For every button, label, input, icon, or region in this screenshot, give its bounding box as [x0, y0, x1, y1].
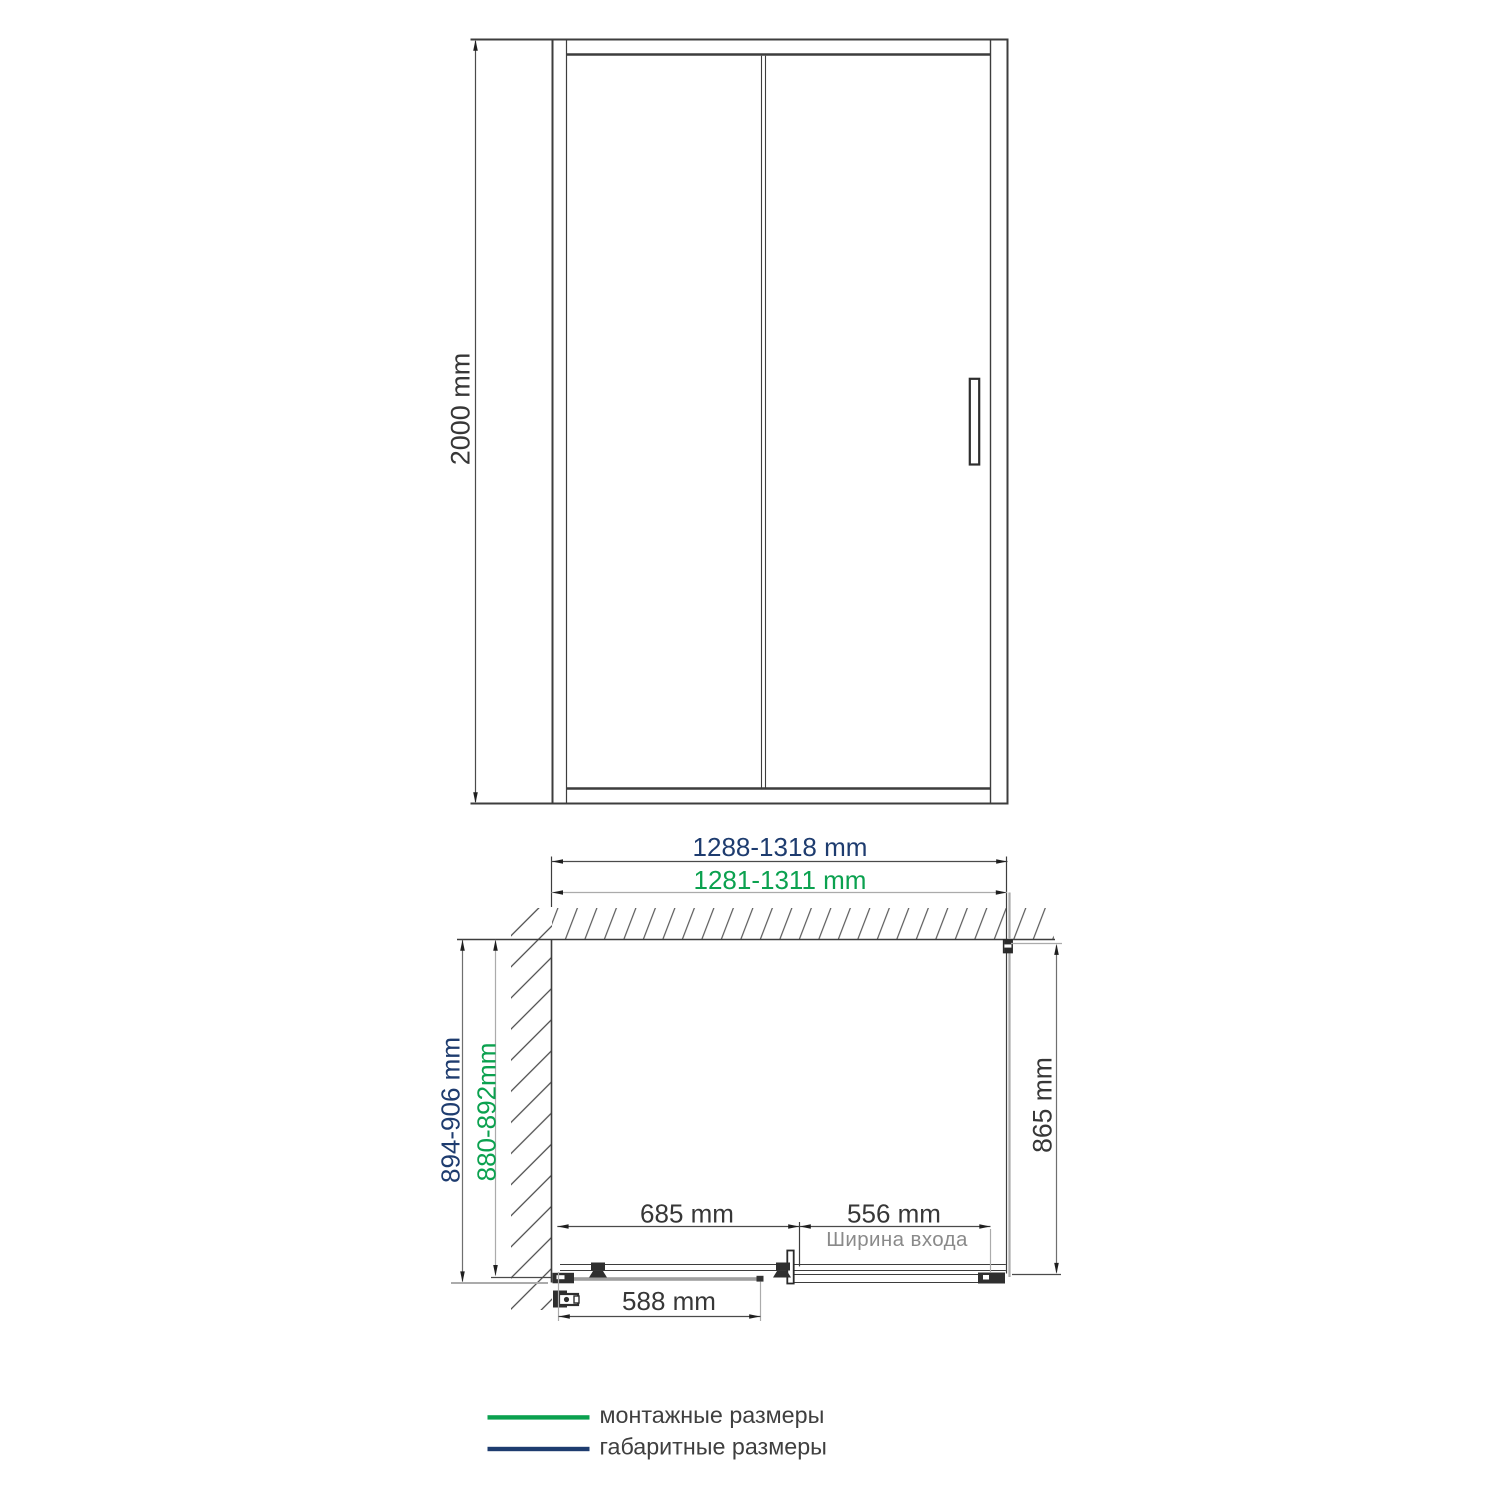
svg-text:2000 mm: 2000 mm: [446, 353, 476, 466]
svg-text:865 mm: 865 mm: [1028, 1057, 1058, 1153]
svg-text:монтажные размеры: монтажные размеры: [600, 1402, 825, 1428]
svg-text:габаритные размеры: габаритные размеры: [600, 1434, 827, 1460]
svg-text:Ширина входа: Ширина входа: [826, 1228, 968, 1251]
svg-text:880-892mm: 880-892mm: [472, 1043, 502, 1182]
svg-text:1281-1311 mm: 1281-1311 mm: [694, 865, 867, 895]
svg-text:556 mm: 556 mm: [847, 1198, 941, 1228]
svg-text:685 mm: 685 mm: [640, 1198, 734, 1228]
svg-text:1288-1318 mm: 1288-1318 mm: [693, 832, 868, 862]
svg-text:894-906 mm: 894-906 mm: [436, 1037, 466, 1183]
svg-text:588 mm: 588 mm: [622, 1286, 716, 1316]
